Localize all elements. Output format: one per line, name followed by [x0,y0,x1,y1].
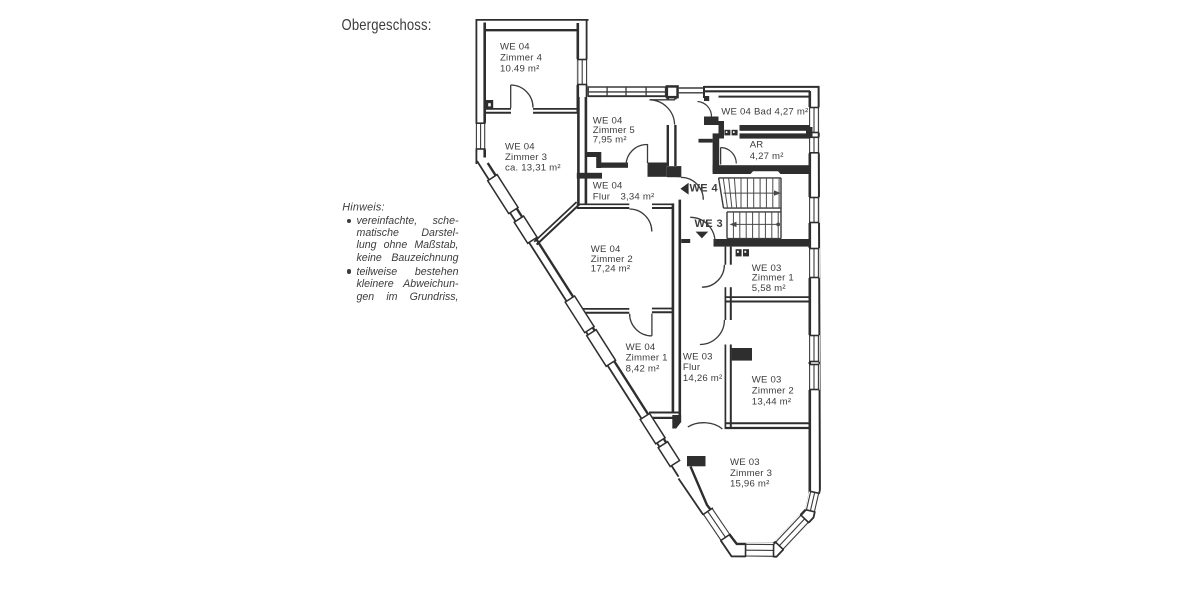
svg-text:Flur: Flur [593,191,611,202]
svg-text:13,44 m²: 13,44 m² [752,397,792,408]
svg-text:3,34 m²: 3,34 m² [621,191,656,202]
svg-text:5,58 m²: 5,58 m² [752,283,787,294]
svg-text:Zimmer 3: Zimmer 3 [730,468,772,479]
svg-text:14,26 m²: 14,26 m² [683,373,723,384]
svg-text:7,95 m²: 7,95 m² [593,135,628,146]
svg-text:WE 04 Bad 4,27 m²: WE 04 Bad 4,27 m² [721,106,809,117]
svg-text:Hinweis:: Hinweis: [342,202,384,214]
svg-text:Zimmer 4: Zimmer 4 [500,52,543,63]
svg-text:Zimmer 2: Zimmer 2 [752,386,794,397]
svg-text:WE 04: WE 04 [500,41,530,52]
svg-text:10.49 m²: 10.49 m² [500,63,540,74]
svg-text:Flur: Flur [683,362,701,373]
svg-text:WE 03: WE 03 [752,375,782,386]
svg-text:Zimmer 3: Zimmer 3 [505,152,547,163]
svg-text:WE 04: WE 04 [626,342,656,353]
svg-text:WE 3: WE 3 [695,218,724,230]
svg-text:AR: AR [750,140,764,151]
svg-text:Zimmer 1: Zimmer 1 [626,353,668,364]
svg-text:WE 04: WE 04 [505,141,535,152]
svg-text:8,42 m²: 8,42 m² [626,363,661,374]
svg-text:Obergeschoss:: Obergeschoss: [342,17,432,34]
svg-text:ca. 13,31 m²: ca. 13,31 m² [505,162,561,173]
svg-text:WE 04: WE 04 [593,180,623,191]
svg-text:WE 03: WE 03 [730,457,760,468]
svg-text:17,24 m²: 17,24 m² [591,264,631,275]
svg-text:15,96 m²: 15,96 m² [730,479,770,490]
svg-text:WE 03: WE 03 [683,351,713,362]
svg-text:WE 4: WE 4 [690,182,719,194]
svg-text:4,27 m²: 4,27 m² [750,151,785,162]
